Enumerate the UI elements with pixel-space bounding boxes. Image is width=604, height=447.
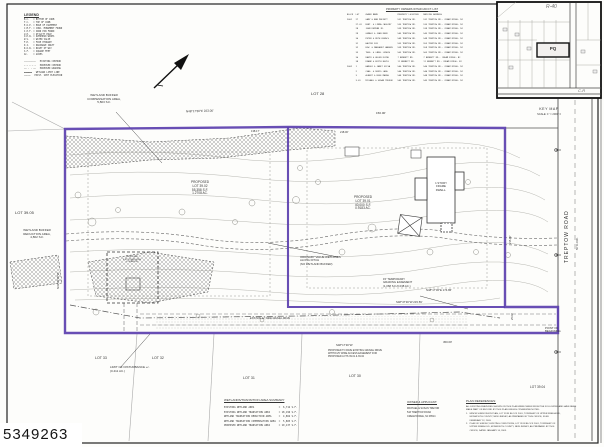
keymap-title: KEY MAP: [539, 107, 558, 111]
summary-table-title: WETLANDS/TRANSITION AREA SUMMARY: [224, 399, 284, 403]
plan-drawing: [0, 0, 604, 447]
bearing-top: N48°17'30"E 223.00': [186, 110, 214, 114]
dim-25: 25.00': [511, 313, 514, 320]
row-width-label: 50' R.O.W.: [576, 238, 579, 250]
plan-references-lines: ALL EXISTING FEATURES SHOWN ON THIS PLAN…: [466, 406, 576, 433]
site-plan-sheet: LEGEND B.C. = BOTTOM OF CURB T.C. = TOP …: [0, 0, 604, 447]
keymap-zone-cr: C-R: [578, 89, 585, 94]
owners-table-header: BLOCK LOT OWNER NAME PROPERTY LOCATION M…: [347, 14, 442, 17]
lot28-label: LOT 28: [311, 92, 324, 97]
lot33-label: LOT 33: [95, 356, 107, 360]
legend-linetypes: ───────── EXISTING CONTOUR ─ ─ ─ ─ ─ PRO…: [24, 60, 62, 78]
pave-note: PROPOSED TO PAVE EXISTING GRAVEL DRIVE W…: [328, 350, 382, 358]
owners-table-title: PROPERTY OWNERS WITHIN 200 FT. LIST: [386, 8, 438, 11]
bearing-s4817: S48°17'30"W: [336, 344, 352, 347]
wetland-reduction-label: WETLAND BUFFER REDUCTION AREA, 4,862 S.F…: [23, 229, 51, 240]
keymap-scale: SCALE: 1" = 2000' ±: [537, 113, 561, 116]
scan-stamp-number: 5349263: [3, 426, 68, 444]
ordinary-wetlands-label: ORDINARY VALUE WETLANDS ALONG DITCH (NO …: [300, 256, 341, 266]
bearing-west-line: N41°42'30"W: [57, 272, 60, 289]
bearing-s4847: S48°47'30"W 215.59': [396, 301, 422, 304]
proposed-dwelling-label: PROPOSED 2 STY DWELLING LOCATION: [123, 256, 141, 264]
ditch-lines: [66, 229, 557, 250]
limit-of-disturbance-label: LIMIT OF DISTURBANCE +/- (0.411 AC.): [110, 366, 149, 373]
owners-table-rows: 2001 27 GARY & ANN MOFFETT 531 TREPTOW R…: [347, 18, 463, 84]
lot31-label: LOT 31: [243, 376, 255, 380]
dim-150: 150.00': [376, 112, 386, 116]
owner-block-lines: MICHAEL & SUSAN TREVOR 543 TREPTOW ROAD …: [407, 407, 439, 419]
lot3905-label: LOT 39.05: [15, 211, 34, 216]
dim-218: 218.00': [340, 131, 348, 134]
legend-title: LEGEND: [24, 13, 39, 17]
gravel-drive: [155, 316, 467, 329]
keymap-parcel-label: PQ: [550, 46, 557, 51]
bearing-n4817: N48°17'30"E 174.86': [426, 289, 452, 292]
proposed-lot3902-label: PROPOSED LOT 39.02 55,358 S.F. 1.2708 AC…: [191, 181, 209, 196]
proposed-lot3901-label: PROPOSED LOT 39.01 40,000 S.F. 0.9183 AC…: [354, 196, 372, 211]
legend-entries: B.C. = BOTTOM OF CURB T.C. = TOP OF CURB…: [24, 19, 62, 57]
existing-drive-label: EXISTING 12' WIDE GRAVEL DRIVE: [250, 318, 290, 321]
lot32-label: LOT 32: [152, 356, 164, 360]
lot30-label: LOT 30: [349, 374, 361, 378]
one-story-dwelling-label: 1 STORY FRAME DWELL.: [435, 182, 447, 192]
dim-138: 138.17': [251, 130, 259, 133]
grading-easement-label: 15' TEMPORARY GRADING EASEMENT (1,068 S.…: [383, 278, 412, 288]
dim-450: 450.00': [443, 341, 452, 344]
owner-block-title: OWNER & APPLICANT:: [407, 401, 437, 404]
treptow-road-label: TREPTOW ROAD: [565, 210, 571, 263]
dim-215: 215.00': [509, 236, 512, 244]
treptow-road-lines: [558, 99, 592, 441]
point-of-beginning-label: POINT OF BEGINNING: [545, 327, 561, 334]
shed: [398, 215, 422, 237]
plan-references-title: PLAN REFERENCES:: [466, 400, 496, 404]
summary-table-rows: EXISTING WETLAND AREA = 6,712 S.F. EXIST…: [224, 406, 297, 429]
north-arrow-icon: [154, 54, 189, 88]
keymap-zone-r40: R-40: [546, 5, 557, 11]
wetland-compensation-label: WETLAND BUFFER COMPENSATION AREA, 5,803 …: [87, 94, 121, 105]
lot3904-label: LOT 39.04: [530, 386, 545, 390]
